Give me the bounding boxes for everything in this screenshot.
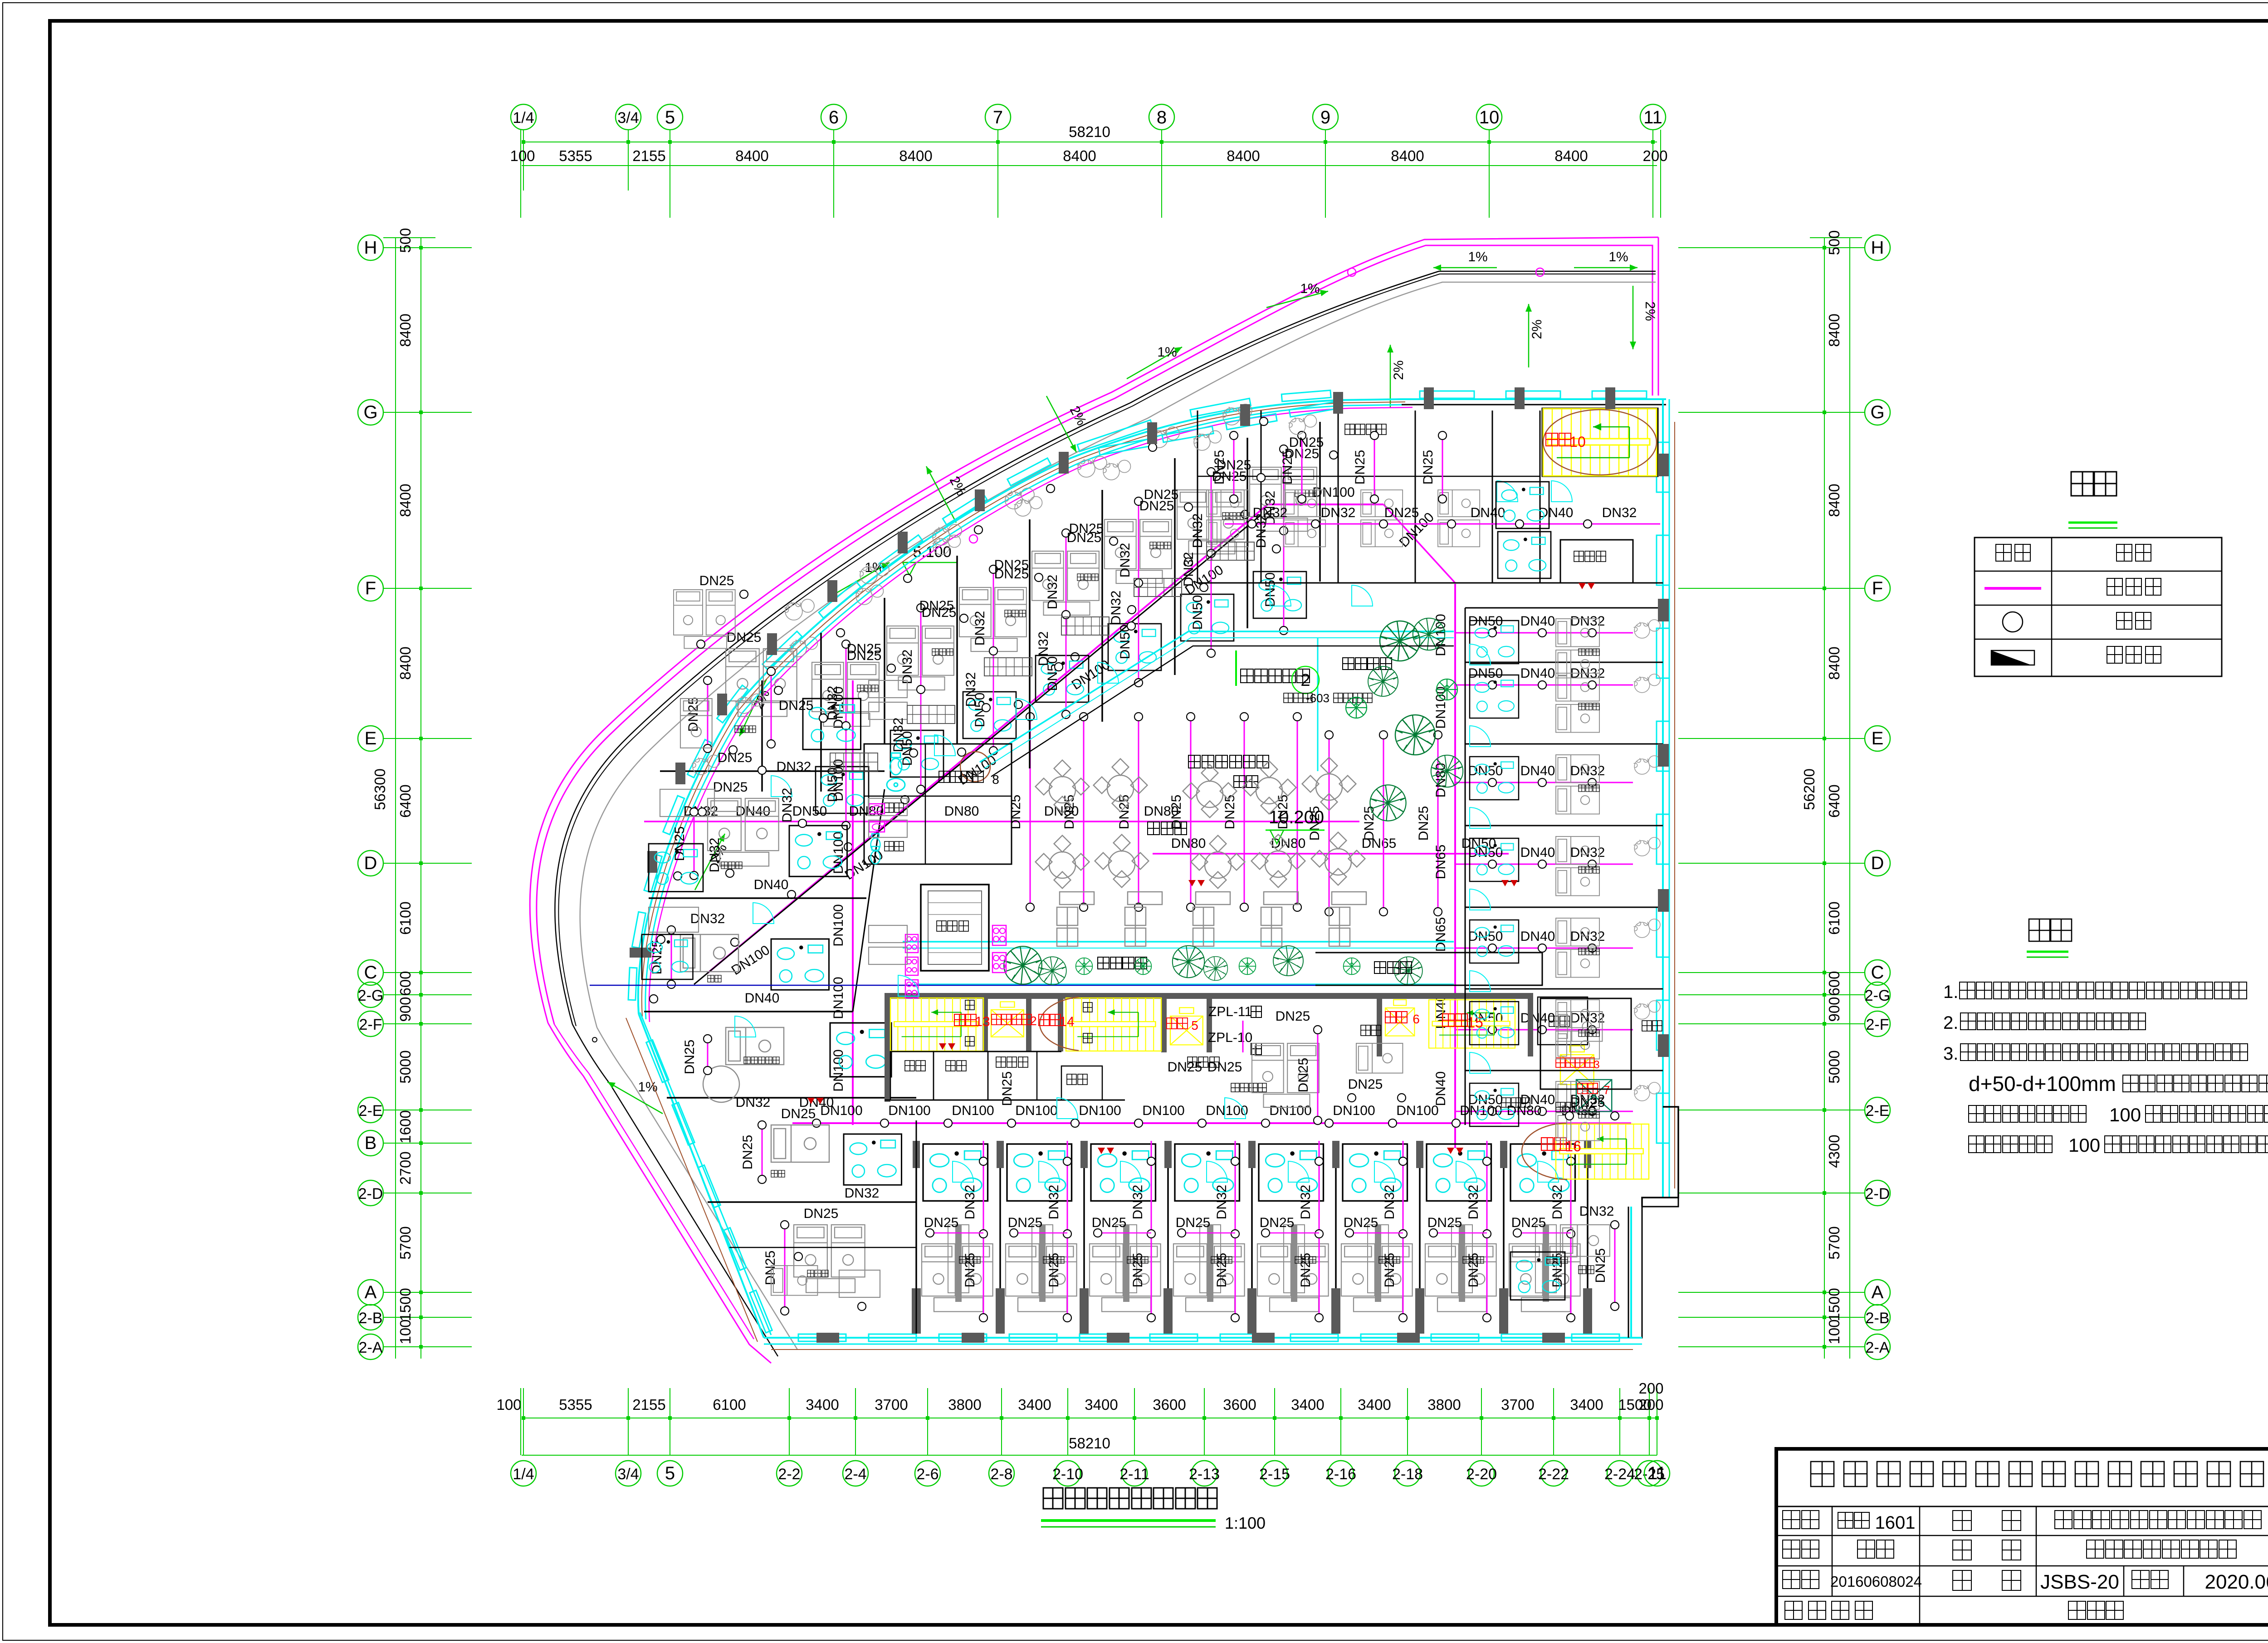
svg-text:200: 200: [1638, 1396, 1663, 1413]
svg-text:DN25: DN25: [1289, 435, 1324, 450]
svg-text:1500: 1500: [397, 1288, 414, 1321]
svg-text:2-18: 2-18: [1392, 1466, 1423, 1483]
svg-text:DN32: DN32: [736, 1095, 771, 1110]
svg-text:DN25: DN25: [1092, 1215, 1127, 1230]
svg-text:DN32: DN32: [1109, 591, 1124, 626]
svg-text:DN25: DN25: [804, 1206, 839, 1221]
svg-text:8400: 8400: [1391, 147, 1424, 164]
svg-text:D: D: [1871, 853, 1884, 873]
svg-text:6: 6: [829, 108, 839, 127]
svg-text:2%: 2%: [1391, 360, 1406, 380]
svg-text:DN100: DN100: [1015, 1103, 1057, 1118]
svg-text:-603: -603: [1306, 691, 1330, 705]
svg-text:8400: 8400: [1826, 484, 1843, 517]
svg-text:DN32: DN32: [1214, 1185, 1229, 1220]
svg-text:1601: 1601: [1875, 1513, 1916, 1533]
svg-text:3800: 3800: [948, 1396, 981, 1413]
svg-text:5355: 5355: [559, 147, 592, 164]
svg-text:600: 600: [397, 971, 414, 996]
svg-text:DN25: DN25: [1362, 806, 1377, 841]
svg-text:DN25: DN25: [1276, 1009, 1310, 1024]
svg-text:DN25: DN25: [718, 750, 753, 765]
svg-text:5700: 5700: [397, 1226, 414, 1259]
svg-text:DN25: DN25: [1217, 458, 1251, 473]
svg-text:10.200: 10.200: [1269, 807, 1324, 827]
svg-text:3700: 3700: [875, 1396, 908, 1413]
svg-text:1%: 1%: [1468, 249, 1487, 264]
svg-text:2155: 2155: [632, 1396, 665, 1413]
svg-text:DN50: DN50: [1468, 614, 1503, 629]
svg-text:DN25: DN25: [847, 648, 882, 663]
svg-text:DN25: DN25: [1169, 795, 1184, 830]
svg-text:DN25: DN25: [1117, 795, 1132, 830]
svg-text:2155: 2155: [632, 147, 665, 164]
svg-text:DN40: DN40: [1433, 1071, 1448, 1106]
svg-text:DN40: DN40: [1520, 763, 1555, 778]
svg-text:DN40: DN40: [745, 991, 780, 1006]
svg-text:2-10: 2-10: [1052, 1466, 1083, 1483]
svg-text:8400: 8400: [1826, 646, 1843, 680]
svg-text:DN32: DN32: [963, 1185, 978, 1220]
svg-text:3700: 3700: [1501, 1396, 1534, 1413]
svg-text:10: 10: [1479, 108, 1500, 127]
svg-text:6100: 6100: [397, 901, 414, 934]
svg-text:C: C: [364, 963, 377, 983]
svg-text:3600: 3600: [1153, 1396, 1186, 1413]
svg-text:3400: 3400: [806, 1396, 839, 1413]
svg-text:DN25: DN25: [682, 1040, 697, 1075]
svg-text:DN25: DN25: [1000, 1071, 1015, 1106]
svg-text:6400: 6400: [397, 784, 414, 817]
svg-text:DN25: DN25: [781, 1106, 816, 1121]
svg-text:6100: 6100: [713, 1396, 746, 1413]
svg-text:2-6: 2-6: [916, 1466, 938, 1483]
svg-text:2%: 2%: [1642, 301, 1657, 321]
svg-text:2-20: 2-20: [1466, 1466, 1497, 1483]
svg-text:DN25: DN25: [1280, 450, 1295, 485]
svg-text:DN25: DN25: [1427, 1215, 1462, 1230]
svg-text:2-2: 2-2: [778, 1466, 800, 1483]
svg-text:56300: 56300: [371, 768, 388, 810]
svg-text:DN25: DN25: [1593, 1248, 1608, 1283]
svg-text:3400: 3400: [1358, 1396, 1391, 1413]
svg-text:5355: 5355: [559, 1396, 592, 1413]
svg-text:3600: 3600: [1223, 1396, 1256, 1413]
svg-text:DN32: DN32: [780, 788, 795, 823]
svg-text:3800: 3800: [1427, 1396, 1461, 1413]
svg-text:DN100: DN100: [1333, 1103, 1375, 1118]
svg-text:8400: 8400: [397, 313, 414, 347]
svg-text:2-22: 2-22: [1538, 1466, 1569, 1483]
svg-text:3400: 3400: [1570, 1396, 1603, 1413]
svg-text:2.: 2.: [1943, 1013, 1958, 1033]
svg-text:8400: 8400: [397, 484, 414, 517]
svg-text:DN50: DN50: [825, 768, 840, 802]
svg-text:2-13: 2-13: [1189, 1466, 1220, 1483]
svg-text:DN40: DN40: [1520, 614, 1555, 629]
svg-text:58210: 58210: [1069, 1435, 1110, 1452]
svg-text:2-A: 2-A: [1866, 1339, 1890, 1356]
svg-text:1.: 1.: [1943, 982, 1958, 1002]
svg-text:DN40: DN40: [1471, 505, 1505, 520]
svg-text:100: 100: [2068, 1134, 2100, 1156]
svg-text:100: 100: [1826, 1319, 1843, 1344]
svg-text:JSBS-20: JSBS-20: [2040, 1571, 2119, 1593]
svg-text:d+50-d+100mm: d+50-d+100mm: [1969, 1072, 2116, 1095]
svg-text:2-8: 2-8: [990, 1466, 1012, 1483]
svg-text:DN50: DN50: [1468, 666, 1503, 681]
svg-text:DN80: DN80: [1171, 836, 1206, 851]
svg-text:11: 11: [1643, 108, 1662, 127]
svg-text:DN25: DN25: [779, 698, 814, 713]
svg-text:500: 500: [1826, 230, 1843, 255]
svg-text:8: 8: [1157, 108, 1167, 127]
svg-text:DN25: DN25: [1069, 521, 1104, 536]
svg-text:DN25: DN25: [1168, 1060, 1202, 1075]
svg-text:G: G: [363, 402, 377, 422]
svg-text:DN32: DN32: [690, 911, 725, 926]
svg-text:3: 3: [1593, 1059, 1599, 1071]
svg-text:8400: 8400: [397, 646, 414, 680]
svg-text:DN100: DN100: [1079, 1103, 1121, 1118]
svg-text:B: B: [365, 1133, 377, 1153]
svg-text:DN50: DN50: [792, 804, 827, 819]
svg-text:DN25: DN25: [1222, 795, 1237, 830]
svg-text:DN25: DN25: [1348, 1077, 1383, 1092]
svg-text:DN25: DN25: [1008, 795, 1023, 830]
svg-text:C: C: [1871, 963, 1884, 983]
svg-text:1/4: 1/4: [513, 109, 534, 127]
svg-text:DN25: DN25: [1296, 1058, 1311, 1093]
svg-text:2-24: 2-24: [1604, 1466, 1635, 1483]
svg-text:DN32: DN32: [1550, 1185, 1565, 1220]
svg-text:DN25: DN25: [1570, 1095, 1605, 1110]
svg-text:100: 100: [510, 147, 535, 164]
svg-text:DN25: DN25: [727, 630, 762, 645]
svg-text:DN25: DN25: [1207, 1060, 1242, 1075]
svg-text:A: A: [365, 1282, 377, 1302]
svg-text:DN80: DN80: [944, 804, 979, 819]
svg-text:DN25: DN25: [1344, 1215, 1378, 1230]
svg-text:F: F: [365, 578, 376, 598]
svg-text:DN32: DN32: [1321, 505, 1356, 520]
svg-text:DN100: DN100: [1269, 1103, 1311, 1118]
svg-text:2-E: 2-E: [1866, 1102, 1890, 1120]
svg-text:6: 6: [1413, 1012, 1420, 1026]
svg-text:DN100: DN100: [1433, 614, 1448, 656]
svg-text:DN32: DN32: [963, 672, 978, 707]
svg-text:DN25: DN25: [713, 780, 748, 795]
svg-text:5: 5: [1191, 1018, 1198, 1032]
svg-text:DN100: DN100: [1460, 1103, 1502, 1118]
svg-text:DN25: DN25: [740, 1135, 755, 1170]
svg-text:DN25: DN25: [650, 940, 665, 975]
svg-text:1%: 1%: [638, 1080, 657, 1095]
svg-text:100: 100: [496, 1396, 521, 1413]
svg-text:DN32: DN32: [1602, 505, 1637, 520]
svg-text:E: E: [365, 729, 377, 748]
svg-text:G: G: [1870, 402, 1884, 422]
svg-text:3/4: 3/4: [617, 109, 639, 127]
svg-text:DN32: DN32: [1130, 1185, 1145, 1220]
svg-text:4300: 4300: [1826, 1134, 1843, 1168]
svg-text:DN32: DN32: [1579, 1204, 1614, 1219]
svg-text:DN50: DN50: [1468, 845, 1503, 860]
svg-text:DN40: DN40: [754, 877, 789, 892]
svg-text:DN100: DN100: [1206, 1103, 1248, 1118]
svg-text:1%: 1%: [1608, 249, 1628, 264]
svg-text:20160608024: 20160608024: [1830, 1573, 1922, 1590]
svg-text:DN100: DN100: [831, 831, 846, 874]
svg-text:DN100: DN100: [1312, 485, 1354, 500]
svg-text:ZPL-10: ZPL-10: [1208, 1030, 1252, 1045]
svg-text:900: 900: [397, 997, 414, 1022]
svg-text:DN25: DN25: [763, 1251, 778, 1286]
svg-text:2-16: 2-16: [1325, 1466, 1356, 1483]
svg-text:DN25: DN25: [699, 573, 734, 588]
svg-text:DN25: DN25: [1260, 1215, 1295, 1230]
svg-text:DN25: DN25: [1416, 806, 1431, 841]
svg-text:DN25: DN25: [1176, 1215, 1211, 1230]
svg-text:900: 900: [1826, 997, 1843, 1022]
svg-text:DN25: DN25: [919, 598, 954, 613]
svg-text:DN65: DN65: [1433, 845, 1448, 880]
svg-text:500: 500: [397, 228, 414, 253]
svg-text:5: 5: [665, 1463, 675, 1483]
svg-text:8400: 8400: [1554, 147, 1588, 164]
svg-text:1/4: 1/4: [513, 1466, 534, 1483]
svg-text:DN25: DN25: [686, 697, 701, 732]
svg-text:A: A: [1872, 1282, 1884, 1302]
svg-text:2-B: 2-B: [1866, 1310, 1890, 1327]
svg-text:8400: 8400: [1826, 313, 1843, 347]
svg-text:2-B: 2-B: [359, 1310, 383, 1327]
svg-text:DN25: DN25: [1353, 450, 1368, 485]
svg-text:DN25: DN25: [994, 557, 1029, 572]
svg-text:600: 600: [1826, 971, 1843, 996]
svg-text:1600: 1600: [397, 1110, 414, 1143]
svg-text:H: H: [1871, 238, 1884, 258]
svg-text:DN65: DN65: [1433, 917, 1448, 952]
svg-text:DN25: DN25: [1384, 505, 1419, 520]
svg-text:2-F: 2-F: [1866, 1016, 1889, 1033]
svg-text:3400: 3400: [1085, 1396, 1118, 1413]
svg-text:DN25: DN25: [924, 1215, 959, 1230]
svg-text:1%: 1%: [1157, 345, 1177, 360]
svg-text:ZPL-11: ZPL-11: [1208, 1004, 1252, 1019]
svg-text:100: 100: [2109, 1104, 2141, 1125]
svg-text:2%: 2%: [1530, 319, 1545, 339]
svg-text:2-G: 2-G: [1865, 987, 1891, 1004]
svg-text:F: F: [1872, 578, 1883, 598]
svg-text:14: 14: [1059, 1014, 1074, 1029]
svg-text:H: H: [364, 238, 377, 258]
svg-text:DN100: DN100: [1142, 1103, 1184, 1118]
svg-text:DN32: DN32: [1036, 631, 1051, 666]
svg-text:200: 200: [1642, 147, 1667, 164]
svg-text:DN40: DN40: [1520, 929, 1555, 944]
svg-text:DN32: DN32: [1181, 552, 1196, 587]
svg-text:2700: 2700: [397, 1151, 414, 1184]
svg-text:DN32: DN32: [845, 1186, 880, 1201]
svg-text:2-F: 2-F: [359, 1016, 382, 1033]
svg-text:DN32: DN32: [825, 686, 840, 721]
svg-text:2: 2: [1300, 671, 1310, 690]
svg-text:1%: 1%: [1300, 281, 1320, 296]
svg-text:DN50: DN50: [1468, 763, 1503, 778]
svg-text:3400: 3400: [1291, 1396, 1324, 1413]
svg-text:DN25: DN25: [1008, 1215, 1043, 1230]
svg-text:2-4: 2-4: [844, 1466, 866, 1483]
svg-text:11: 11: [1647, 1463, 1667, 1483]
svg-text:2-D: 2-D: [358, 1185, 383, 1203]
svg-text:2: 2: [1030, 1014, 1037, 1028]
svg-text:DN25: DN25: [1421, 450, 1436, 485]
svg-text:DN32: DN32: [891, 718, 906, 753]
svg-text:200: 200: [1638, 1380, 1663, 1397]
svg-text:DN100: DN100: [831, 977, 846, 1019]
svg-text:3.: 3.: [1943, 1044, 1958, 1064]
svg-text:DN32: DN32: [973, 611, 987, 646]
svg-text:D: D: [364, 853, 377, 873]
svg-text:DN32: DN32: [1118, 543, 1133, 578]
svg-text:9: 9: [1320, 108, 1330, 127]
svg-text:5000: 5000: [397, 1050, 414, 1083]
svg-text:DN32: DN32: [1298, 1185, 1313, 1220]
svg-text:3400: 3400: [1018, 1396, 1051, 1413]
svg-text:DN25: DN25: [1511, 1215, 1546, 1230]
svg-text:2-11: 2-11: [1119, 1466, 1149, 1483]
svg-text:DN32: DN32: [900, 650, 915, 685]
svg-text:DN32: DN32: [777, 759, 811, 774]
svg-text:1500: 1500: [1826, 1288, 1843, 1321]
svg-text:DN32: DN32: [707, 838, 722, 873]
svg-text:2-E: 2-E: [359, 1102, 383, 1120]
svg-text:2-15: 2-15: [1259, 1466, 1290, 1483]
svg-text:DN100: DN100: [952, 1103, 994, 1118]
svg-text:10: 10: [1569, 434, 1586, 450]
svg-text:DN100: DN100: [831, 904, 846, 946]
svg-text:8400: 8400: [899, 147, 932, 164]
svg-text:1:100: 1:100: [1225, 1514, 1266, 1532]
svg-text:DN32: DN32: [1254, 513, 1269, 548]
svg-text:DN40: DN40: [1520, 666, 1555, 681]
svg-text:DN50: DN50: [1190, 595, 1205, 630]
svg-text:5: 5: [665, 108, 675, 127]
svg-text:2-A: 2-A: [359, 1339, 383, 1356]
svg-text:DN100: DN100: [1396, 1103, 1438, 1118]
svg-text:DN100: DN100: [1433, 686, 1448, 729]
svg-text:2-G: 2-G: [358, 987, 384, 1004]
svg-text:DN32: DN32: [1046, 1185, 1061, 1220]
svg-text:DN32: DN32: [1382, 1185, 1397, 1220]
svg-text:100: 100: [397, 1319, 414, 1344]
svg-text:DN32: DN32: [1466, 1185, 1481, 1220]
svg-text:8400: 8400: [735, 147, 768, 164]
svg-text:6400: 6400: [1826, 784, 1843, 817]
svg-text:E: E: [1872, 729, 1884, 748]
svg-text:DN25: DN25: [1144, 487, 1179, 502]
svg-text:DN40: DN40: [1520, 845, 1555, 860]
svg-text:3/4: 3/4: [617, 1466, 639, 1483]
svg-text:7: 7: [993, 108, 1003, 127]
svg-text:DN32: DN32: [1045, 575, 1060, 610]
svg-text:5000: 5000: [1826, 1050, 1843, 1083]
svg-text:5700: 5700: [1826, 1226, 1843, 1259]
svg-text:DN100: DN100: [888, 1103, 930, 1118]
svg-text:8400: 8400: [1227, 147, 1260, 164]
svg-text:58210: 58210: [1069, 123, 1110, 140]
svg-text:13: 13: [975, 1014, 990, 1029]
svg-text:6100: 6100: [1826, 901, 1843, 934]
svg-text:56200: 56200: [1801, 768, 1818, 810]
svg-text:2020.06: 2020.06: [2204, 1571, 2268, 1593]
svg-text:2-D: 2-D: [1865, 1185, 1890, 1203]
svg-text:8400: 8400: [1063, 147, 1096, 164]
